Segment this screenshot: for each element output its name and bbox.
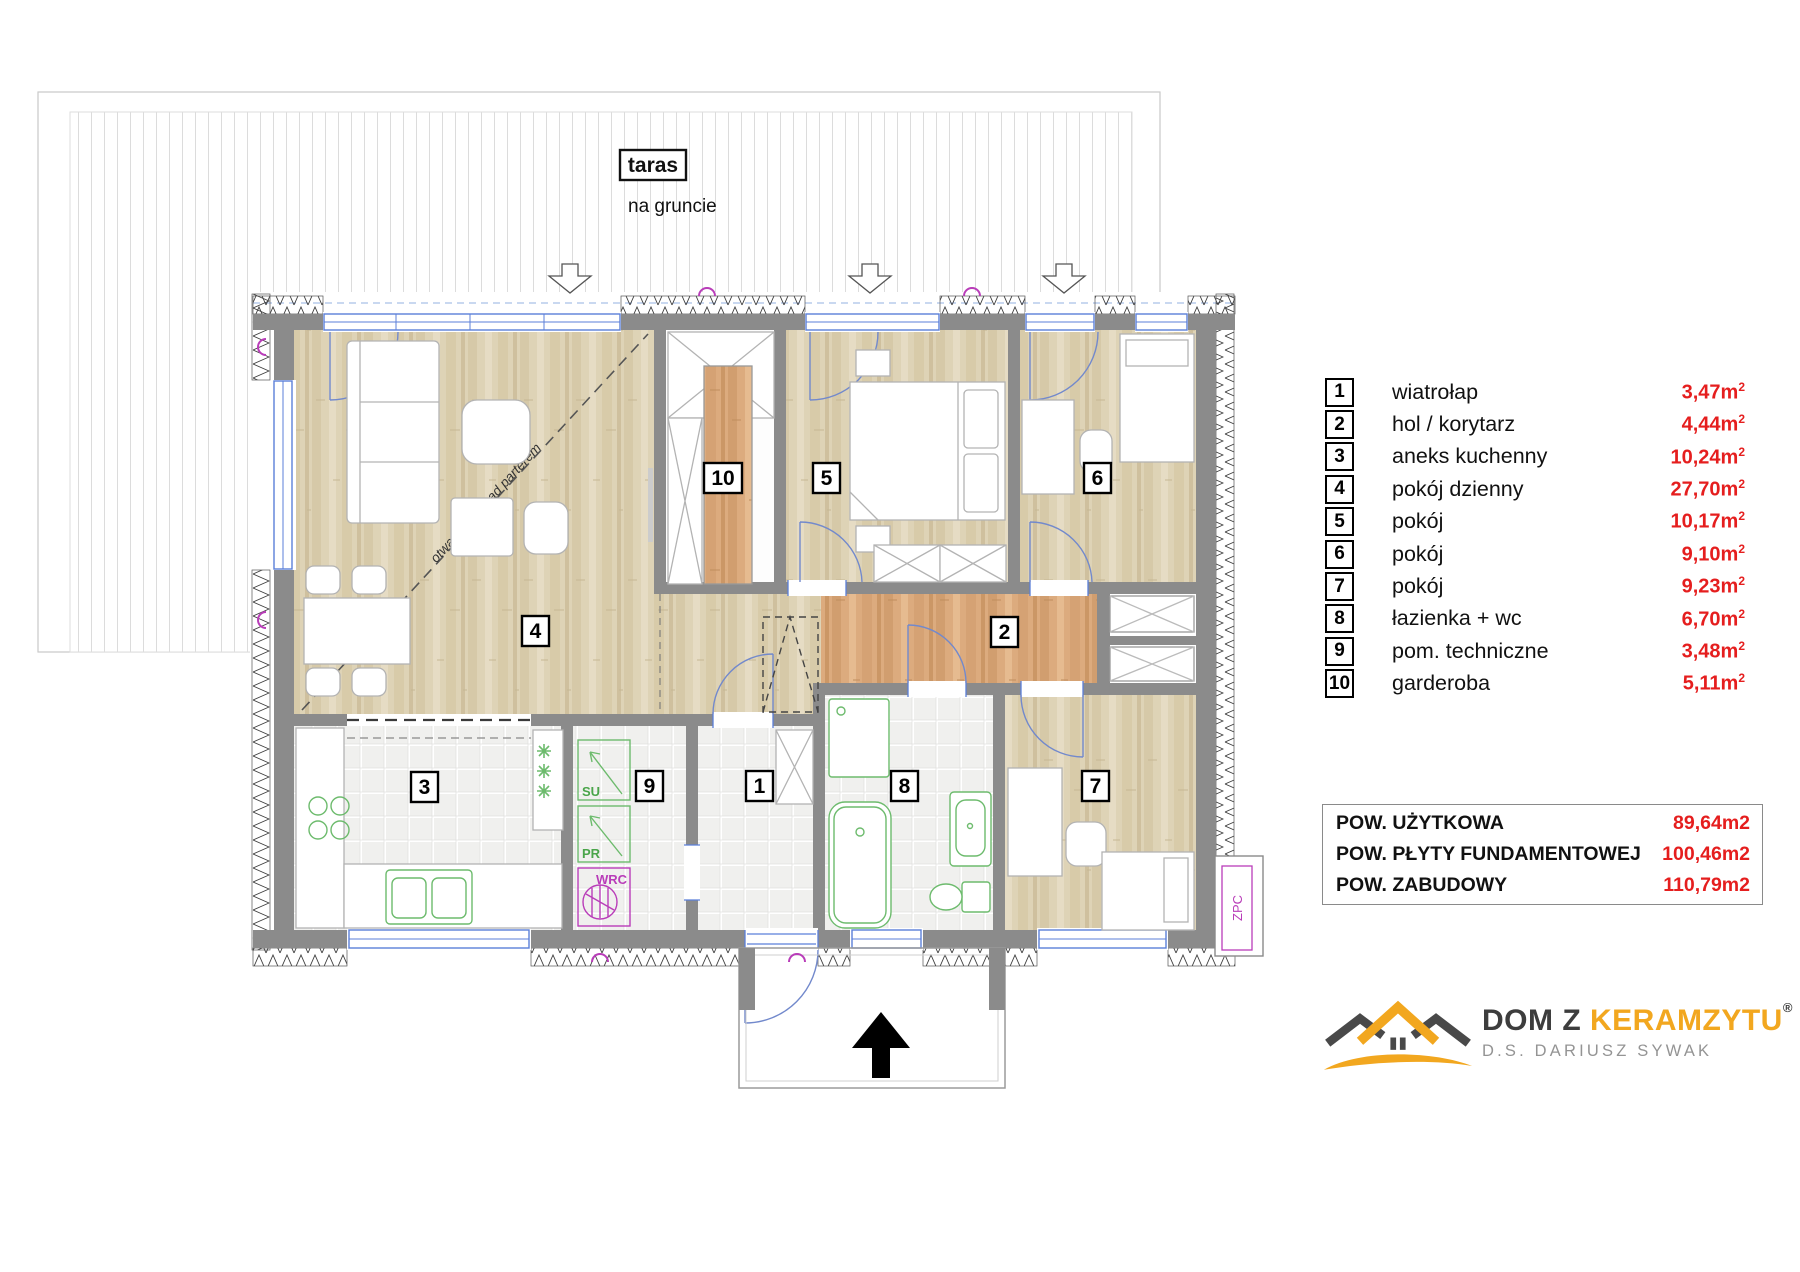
summary-row: POW. PŁYTY FUNDAMENTOWEJ 100,46m2 (1336, 843, 1750, 866)
legend-room-name: pokój (1392, 542, 1443, 567)
zpc-label: ZPC (1230, 895, 1245, 921)
window-bedroom7-bottom (1037, 928, 1168, 950)
legend-number: 9 (1325, 637, 1354, 666)
legend-row: 1 wiatrołap 3,47m2 (1325, 376, 1745, 408)
svg-text:3: 3 (419, 776, 431, 799)
legend-room-name: pokój (1392, 574, 1443, 599)
entry-closet (776, 730, 813, 804)
svg-text:6: 6 (1092, 467, 1104, 490)
floor-plan-drawing: taras na gruncie (0, 0, 1280, 1130)
zpc-unit: ZPC (1215, 856, 1263, 956)
bathtub (829, 802, 891, 928)
room-marker-1: 1 (746, 771, 773, 801)
chair-7 (1066, 822, 1106, 866)
legend-number: 10 (1325, 669, 1354, 698)
porch (739, 948, 1005, 1088)
legend-number: 1 (1325, 378, 1354, 407)
washbasin (950, 792, 991, 866)
legend-room-area: 6,70m2 (1682, 607, 1745, 632)
legend-room-area: 5,11m2 (1683, 671, 1745, 696)
legend-number: 8 (1325, 604, 1354, 633)
legend-row: 7 pokój 9,23m2 (1325, 570, 1745, 602)
legend-row: 6 pokój 9,10m2 (1325, 538, 1745, 570)
room-marker-5: 5 (813, 463, 840, 493)
legend-room-area: 9,10m2 (1682, 542, 1745, 567)
room-marker-2: 2 (991, 617, 1018, 647)
legend-row: 10 garderoba 5,11m2 (1325, 668, 1745, 700)
window-bedroom6-top-1 (1025, 312, 1095, 332)
bed-single-7 (1102, 852, 1194, 930)
armchair-2 (524, 502, 568, 554)
summary-value: 100,46m2 (1662, 843, 1750, 866)
sofa (347, 341, 439, 523)
window-living-left (272, 380, 296, 570)
entrance-arrow-icon (852, 1012, 910, 1078)
legend-room-area: 3,48m2 (1682, 639, 1745, 664)
svg-text:2: 2 (999, 621, 1011, 644)
room-marker-4: 4 (522, 616, 549, 646)
summary-label: POW. UŻYTKOWA (1336, 812, 1504, 835)
registered-mark: ® (1783, 1000, 1793, 1015)
room-marker-9: 9 (636, 771, 663, 801)
wrc-label: WRC (596, 872, 628, 887)
window-kitchen-bottom (347, 928, 531, 950)
terrace-sublabel: na gruncie (628, 196, 717, 217)
legend-row: 2 hol / korytarz 4,44m2 (1325, 408, 1745, 440)
legend-number: 5 (1325, 507, 1354, 536)
summary-row: POW. UŻYTKOWA 89,64m2 (1336, 812, 1750, 835)
svg-text:9: 9 (644, 775, 656, 798)
legend-room-name: pokój dzienny (1392, 477, 1523, 502)
summary-row: POW. ZABUDOWY 110,79m2 (1336, 874, 1750, 897)
legend-number: 2 (1325, 410, 1354, 439)
desk-7 (1008, 768, 1062, 876)
terrace-label: taras (628, 154, 678, 177)
room-legend: 1 wiatrołap 3,47m2 2 hol / korytarz 4,44… (1325, 376, 1745, 700)
logo-subtitle: D.S. DARIUSZ SYWAK (1482, 1042, 1793, 1061)
coffee-table (451, 498, 513, 556)
svg-text:1: 1 (754, 775, 766, 798)
legend-room-name: łazienka + wc (1392, 606, 1522, 631)
desk-6 (1022, 400, 1074, 494)
legend-room-name: pokój (1392, 509, 1443, 534)
legend-number: 7 (1325, 572, 1354, 601)
legend-room-name: wiatrołap (1392, 380, 1478, 405)
svg-text:5: 5 (821, 467, 833, 490)
summary-label: POW. PŁYTY FUNDAMENTOWEJ (1336, 843, 1641, 866)
legend-room-area: 4,44m2 (1682, 412, 1745, 437)
room-marker-8: 8 (891, 771, 918, 801)
legend-room-name: garderoba (1392, 671, 1490, 696)
legend-row: 9 pom. techniczne 3,48m2 (1325, 635, 1745, 667)
legend-room-name: aneks kuchenny (1392, 444, 1547, 469)
area-summary-box: POW. UŻYTKOWA 89,64m2 POW. PŁYTY FUNDAME… (1322, 804, 1763, 905)
legend-room-area: 10,24m2 (1670, 445, 1745, 470)
room-marker-6: 6 (1084, 463, 1111, 493)
legend-number: 4 (1325, 475, 1354, 504)
houses-icon (1322, 978, 1474, 1078)
brand-prefix: DOM Z (1482, 1004, 1581, 1037)
summary-value: 110,79m2 (1663, 874, 1750, 897)
svg-text:4: 4 (530, 620, 542, 643)
window-living-top (323, 312, 621, 332)
svg-text:8: 8 (899, 775, 911, 798)
chest-bedroom5 (874, 545, 1006, 582)
logo-text: DOM Z KERAMZYTU® D.S. DARIUSZ SYWAK (1482, 978, 1793, 1093)
window-bedroom6-top-2 (1135, 312, 1188, 332)
summary-value: 89,64m2 (1673, 812, 1750, 835)
kitchen-sink (386, 870, 472, 924)
legend-room-area: 27,70m2 (1670, 477, 1745, 502)
legend-row: 5 pokój 10,17m2 (1325, 506, 1745, 538)
window-bath-bottom (850, 928, 923, 950)
bed-single-6 (1120, 334, 1194, 462)
legend-room-area: 10,17m2 (1670, 509, 1745, 534)
legend-number: 6 (1325, 540, 1354, 569)
room-marker-7: 7 (1082, 771, 1109, 801)
legend-row: 3 aneks kuchenny 10,24m2 (1325, 441, 1745, 473)
svg-text:10: 10 (711, 467, 734, 490)
floor-plan-page: taras na gruncie (0, 0, 1800, 1272)
legend-row: 8 łazienka + wc 6,70m2 (1325, 603, 1745, 635)
legend-room-name: pom. techniczne (1392, 639, 1549, 664)
su-label: SU (582, 784, 600, 799)
hall-floor (821, 594, 1097, 683)
legend-room-area: 3,47m2 (1682, 380, 1745, 405)
room-marker-10: 10 (704, 463, 742, 493)
company-logo: DOM Z KERAMZYTU® D.S. DARIUSZ SYWAK (1322, 978, 1782, 1093)
legend-room-name: hol / korytarz (1392, 412, 1515, 437)
legend-room-area: 9,23m2 (1682, 574, 1745, 599)
svg-text:7: 7 (1090, 775, 1102, 798)
armchair (462, 400, 530, 464)
legend-number: 3 (1325, 442, 1354, 471)
tv (648, 468, 653, 542)
room-marker-3: 3 (411, 772, 438, 802)
summary-label: POW. ZABUDOWY (1336, 874, 1507, 897)
window-bedroom5-top (805, 312, 940, 332)
shower-tray (829, 699, 889, 777)
brand-accent: KERAMZYTU (1590, 1004, 1783, 1037)
pr-label: PR (582, 846, 601, 861)
legend-row: 4 pokój dzienny 27,70m2 (1325, 473, 1745, 505)
